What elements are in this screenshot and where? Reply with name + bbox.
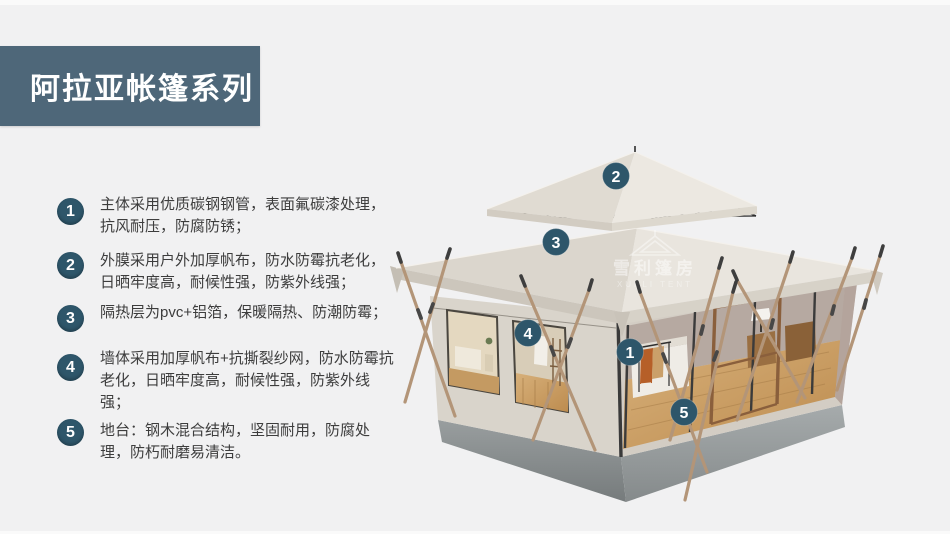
feature-list: 1 主体采用优质碳钢钢管，表面氟碳漆处理，抗风耐压，防腐防锈； 2 外膜采用户外… xyxy=(0,0,420,534)
tent-marker-1-label: 1 xyxy=(626,345,635,362)
feature-number-badge-5: 5 xyxy=(57,419,84,446)
tent-illustration: 雪利篷房 XUELI TENT xyxy=(385,140,895,510)
tent-marker-5: 5 xyxy=(671,399,698,426)
tent-marker-4-label: 4 xyxy=(524,326,533,343)
tent-marker-2: 2 xyxy=(603,163,630,190)
feature-number-badge-1: 1 xyxy=(57,198,84,225)
tent-marker-1: 1 xyxy=(617,339,644,366)
tent-marker-4: 4 xyxy=(515,320,542,347)
feature-text-4: 墙体采用加厚帆布+抗撕裂纱网，防水防霉抗老化，日晒牢度高，耐候性强，防紫外线强； xyxy=(100,348,396,414)
page: { "page": { "background": "#f1f1f2" }, "… xyxy=(0,0,950,534)
feature-text-1: 主体采用优质碳钢钢管，表面氟碳漆处理，抗风耐压，防腐防锈； xyxy=(100,194,396,238)
tent-marker-5-label: 5 xyxy=(680,405,689,422)
feature-number-badge-4: 4 xyxy=(57,354,84,381)
feature-number-badge-3: 3 xyxy=(57,305,84,332)
watermark-en: XUELI TENT xyxy=(617,280,693,289)
watermark-cn: 雪利篷房 xyxy=(613,258,697,278)
tent-marker-3: 3 xyxy=(543,229,570,256)
feature-text-3: 隔热层为pvc+铝箔，保暖隔热、防潮防霉； xyxy=(100,302,396,324)
tent-marker-2-label: 2 xyxy=(612,169,621,186)
feature-number-badge-2: 2 xyxy=(57,252,84,279)
feature-text-5: 地台：钢木混合结构，坚固耐用，防腐处理，防朽耐磨易清洁。 xyxy=(100,420,396,464)
tent-marker-3-label: 3 xyxy=(552,235,561,252)
feature-text-2: 外膜采用户外加厚帆布，防水防霉抗老化，日晒牢度高，耐候性强，防紫外线强； xyxy=(100,250,396,294)
